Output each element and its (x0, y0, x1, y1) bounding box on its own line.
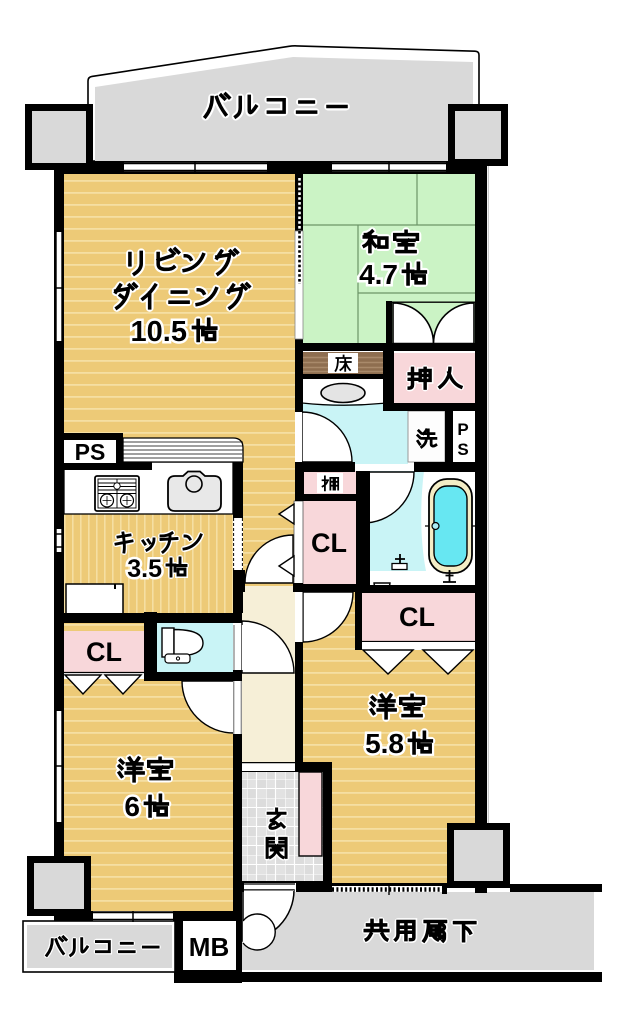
svg-text:CL: CL (86, 637, 122, 667)
svg-text:CL: CL (399, 602, 435, 632)
svg-text:3.5: 3.5 (127, 555, 162, 583)
svg-text:CL: CL (311, 528, 347, 558)
svg-text:S: S (457, 440, 468, 459)
svg-text:5.8: 5.8 (365, 728, 404, 759)
svg-text:4.7: 4.7 (359, 259, 398, 290)
svg-text:10.5: 10.5 (131, 316, 187, 348)
svg-text:P: P (457, 420, 468, 439)
svg-text:6: 6 (124, 791, 140, 822)
svg-text:PS: PS (75, 439, 106, 465)
svg-text:MB: MB (189, 932, 229, 962)
